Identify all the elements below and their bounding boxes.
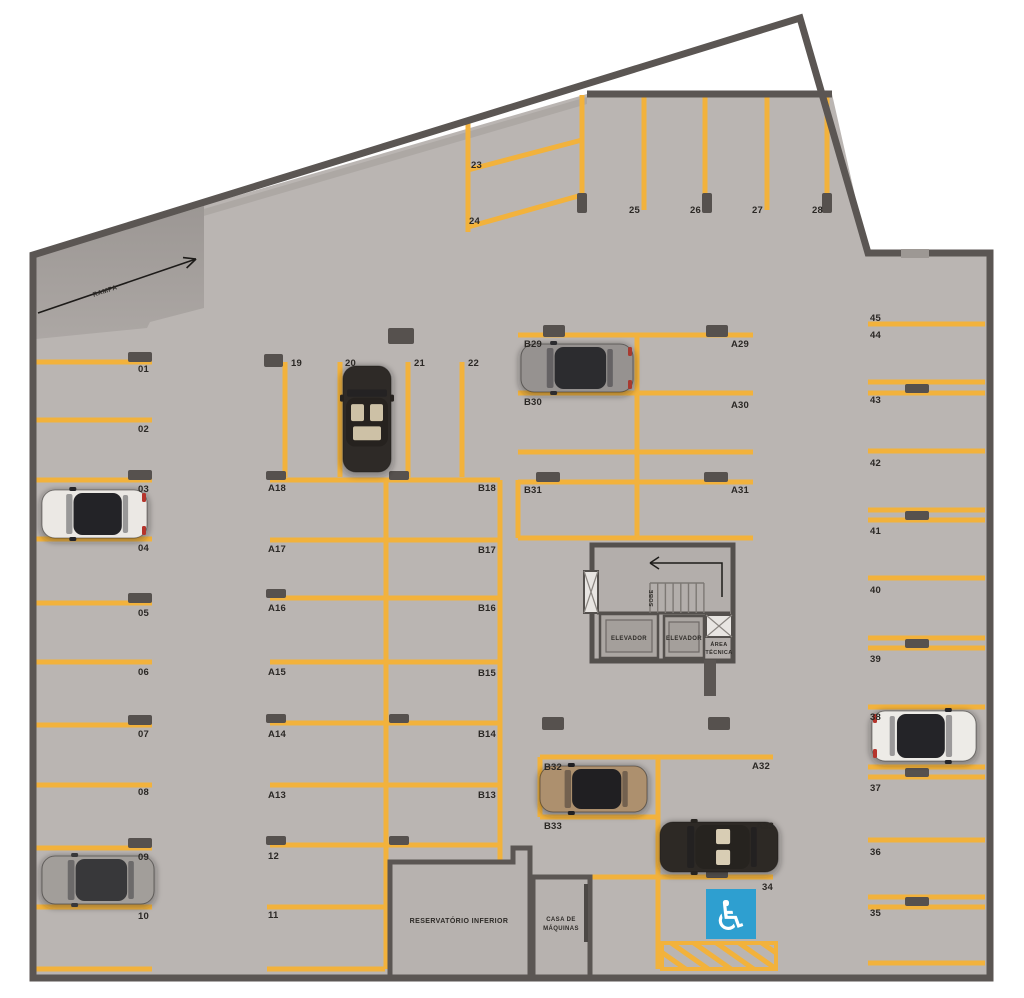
stairs-label: SOBE bbox=[649, 589, 655, 606]
spot-label-A15: A15 bbox=[268, 667, 287, 678]
machine-room-label-1: CASA DE bbox=[546, 917, 576, 923]
shaft-left bbox=[584, 571, 598, 613]
spot-label-B31: B31 bbox=[524, 485, 543, 496]
spot-label-B32: B32 bbox=[544, 762, 562, 773]
spot-label-02: 02 bbox=[138, 424, 149, 435]
technical-area-label-1: ÁREA bbox=[710, 641, 727, 648]
spot-label-42: 42 bbox=[870, 458, 881, 469]
technical-area-label-2: TÉCNICA bbox=[705, 648, 732, 656]
wheel-stop bbox=[266, 471, 286, 480]
spot-label-34: 34 bbox=[762, 882, 773, 893]
reservoir-label: RESERVATÓRIO INFERIOR bbox=[410, 916, 509, 925]
spot-label-25: 25 bbox=[629, 205, 640, 216]
spot-label-04: 04 bbox=[138, 543, 149, 554]
elevator-left: ELEVADOR bbox=[600, 614, 658, 658]
hatched-zone bbox=[662, 943, 776, 969]
machine-room-door bbox=[584, 884, 588, 942]
spot-label-B15: B15 bbox=[478, 668, 497, 679]
spot-label-21: 21 bbox=[414, 358, 425, 369]
wheel-stop bbox=[822, 193, 832, 213]
spot-label-26: 26 bbox=[690, 205, 701, 216]
accessible-spot: ♿ bbox=[706, 889, 756, 940]
spot-label-35: 35 bbox=[870, 908, 881, 919]
spot-label-08: 08 bbox=[138, 787, 149, 798]
wheel-stop bbox=[264, 354, 283, 367]
spot-label-20: 20 bbox=[345, 358, 356, 369]
technical-area: ÁREA TÉCNICA bbox=[705, 615, 732, 656]
elevator-left-label: ELEVADOR bbox=[611, 636, 647, 642]
spot-label-43: 43 bbox=[870, 395, 881, 406]
spot-label-10: 10 bbox=[138, 911, 149, 922]
wheel-stop bbox=[704, 472, 728, 482]
spot-label-07: 07 bbox=[138, 729, 149, 740]
wheel-stop bbox=[388, 328, 414, 344]
spot-label-B13: B13 bbox=[478, 790, 496, 801]
wheel-stop bbox=[128, 593, 152, 603]
spot-label-01: 01 bbox=[138, 364, 149, 375]
wheel-stop bbox=[389, 471, 409, 480]
spot-label-45: 45 bbox=[870, 313, 881, 324]
spot-label-A29: A29 bbox=[731, 339, 749, 350]
spot-label-37: 37 bbox=[870, 783, 881, 794]
wheel-stop bbox=[905, 384, 929, 393]
spot-label-38: 38 bbox=[870, 712, 881, 723]
spot-label-28: 28 bbox=[812, 205, 823, 216]
wheel-stop bbox=[128, 715, 152, 725]
spot-label-36: 36 bbox=[870, 847, 881, 858]
spot-label-B14: B14 bbox=[478, 729, 497, 740]
spot-label-B30: B30 bbox=[524, 397, 542, 408]
wheel-stop bbox=[905, 639, 929, 648]
spot-label-A32: A32 bbox=[752, 761, 770, 772]
wheel-stop bbox=[542, 717, 564, 730]
spot-label-09: 09 bbox=[138, 852, 149, 863]
wheel-stop bbox=[708, 717, 730, 730]
wheel-stop bbox=[706, 325, 728, 337]
spot-label-22: 22 bbox=[468, 358, 479, 369]
car bbox=[39, 487, 150, 543]
spot-label-23: 23 bbox=[471, 160, 482, 171]
parking-floor-plan: RAMPA ♿ RESERVATÓRIO INFERIOR CASA DE MÁ… bbox=[0, 0, 1024, 998]
spot-label-24: 24 bbox=[469, 216, 480, 227]
spot-label-B33: B33 bbox=[544, 821, 562, 832]
wheel-stop bbox=[266, 836, 286, 845]
wheel-stop bbox=[702, 193, 712, 213]
spot-label-A16: A16 bbox=[268, 603, 286, 614]
spot-label-19: 19 bbox=[291, 358, 302, 369]
car bbox=[340, 365, 394, 477]
wheel-stop bbox=[389, 714, 409, 723]
wheel-stop bbox=[905, 897, 929, 906]
wheel-stop bbox=[266, 589, 286, 598]
spot-label-B16: B16 bbox=[478, 603, 496, 614]
spot-label-B18: B18 bbox=[478, 483, 496, 494]
spot-label-A31: A31 bbox=[731, 485, 750, 496]
spot-label-40: 40 bbox=[870, 585, 881, 596]
spot-label-A30: A30 bbox=[731, 400, 749, 411]
wheel-stop bbox=[128, 352, 152, 362]
car bbox=[869, 708, 979, 766]
wheel-stop bbox=[266, 714, 286, 723]
spot-label-41: 41 bbox=[870, 526, 881, 537]
core-wall-stub bbox=[704, 660, 716, 696]
wheelchair-icon: ♿ bbox=[713, 892, 750, 940]
wheel-stop bbox=[128, 470, 152, 480]
spot-label-A14: A14 bbox=[268, 729, 287, 740]
spot-label-A18: A18 bbox=[268, 483, 286, 494]
elevator-right-label: ELEVADOR bbox=[666, 636, 702, 642]
wheel-stop bbox=[905, 768, 929, 777]
spot-label-05: 05 bbox=[138, 608, 149, 619]
spot-label-A17: A17 bbox=[268, 544, 286, 555]
spot-label-44: 44 bbox=[870, 330, 881, 341]
spot-label-A13: A13 bbox=[268, 790, 286, 801]
wheel-stop bbox=[577, 193, 587, 213]
wheel-stop bbox=[536, 472, 560, 482]
reservoir-room: RESERVATÓRIO INFERIOR bbox=[390, 848, 530, 978]
machine-room: CASA DE MÁQUINAS bbox=[533, 877, 590, 978]
spot-label-39: 39 bbox=[870, 654, 881, 665]
plan-svg: RAMPA ♿ RESERVATÓRIO INFERIOR CASA DE MÁ… bbox=[0, 0, 1024, 998]
wheel-stop bbox=[905, 511, 929, 520]
wheel-stop bbox=[543, 325, 565, 337]
spot-label-06: 06 bbox=[138, 667, 149, 678]
machine-room-label-2: MÁQUINAS bbox=[543, 925, 579, 932]
spot-label-11: 11 bbox=[268, 910, 279, 921]
spot-label-27: 27 bbox=[752, 205, 763, 216]
spot-label-B17: B17 bbox=[478, 545, 496, 556]
spot-label-A33: A33 bbox=[756, 821, 774, 832]
spot-label-12: 12 bbox=[268, 851, 279, 862]
spot-label-B29: B29 bbox=[524, 339, 542, 350]
wheel-stop bbox=[128, 838, 152, 848]
spot-label-03: 03 bbox=[138, 484, 149, 495]
elevator-right: ELEVADOR bbox=[664, 616, 704, 658]
wall-vent bbox=[901, 249, 929, 258]
wheel-stop bbox=[389, 836, 409, 845]
